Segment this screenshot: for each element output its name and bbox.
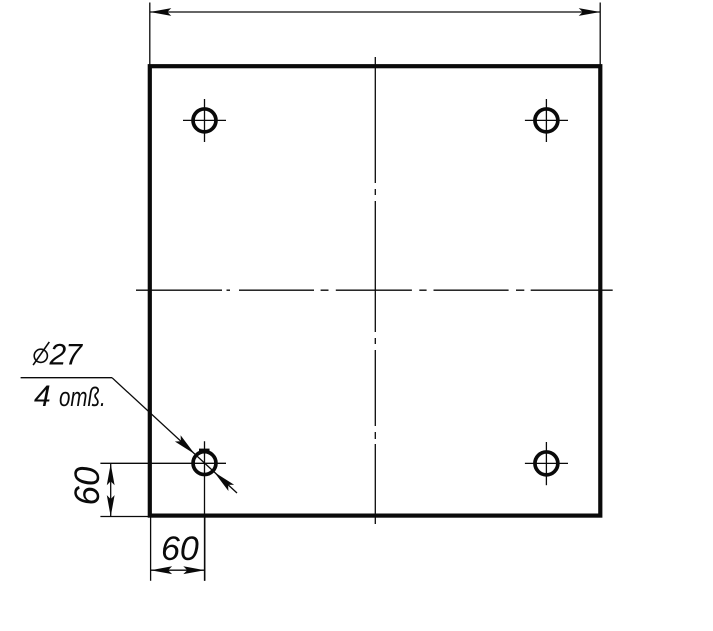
svg-text:60: 60 (161, 530, 199, 568)
svg-text:4: 4 (34, 380, 51, 413)
svg-text:60: 60 (68, 466, 107, 505)
svg-text:omß.: omß. (59, 382, 106, 412)
svg-text:27: 27 (49, 339, 84, 372)
